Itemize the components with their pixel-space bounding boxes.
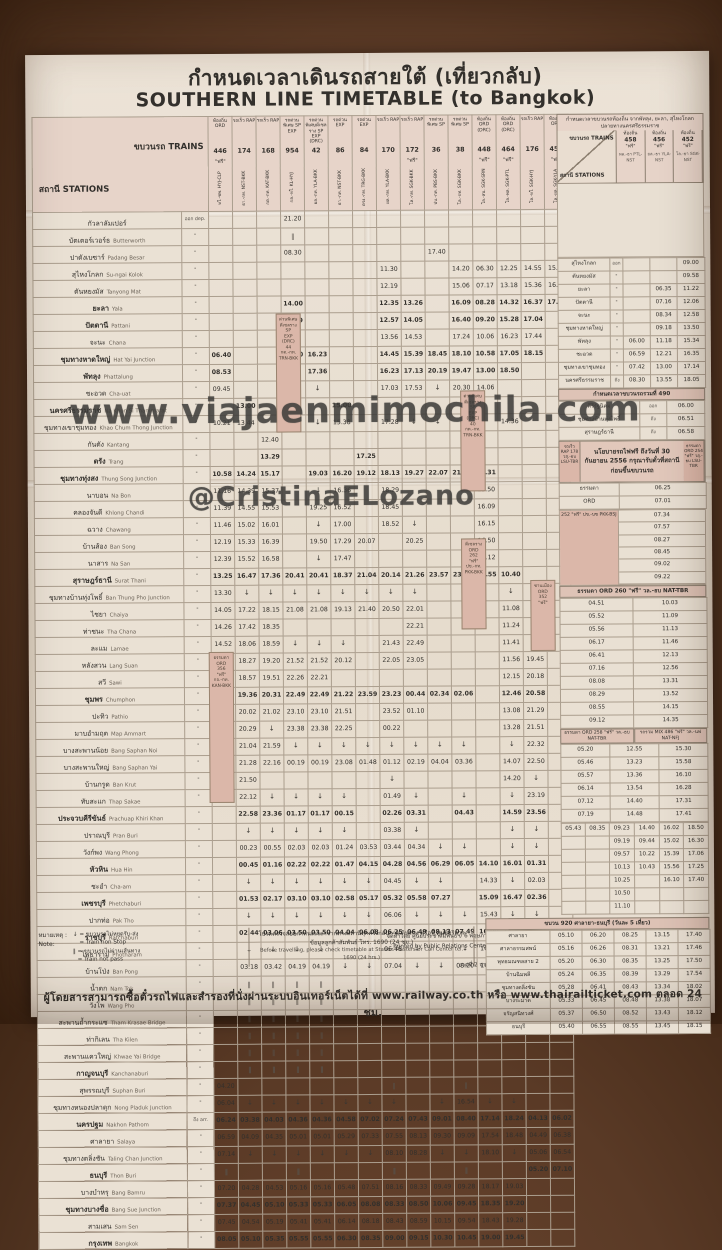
time-cell: 14.32: [497, 295, 521, 312]
time-cell: [478, 1060, 502, 1077]
title-english: SOUTHERN LINE TIMETABLE (to Bangkok): [115, 88, 615, 113]
mini-cell: 06.58: [667, 426, 705, 439]
mini-cell: [635, 888, 660, 901]
time-cell: 14.20: [500, 771, 524, 788]
mini-cell: ": [610, 297, 623, 310]
free-note-text: นโยบายรถไฟฟรี ถึงวันที่ 30 กันยายน 2556 …: [580, 441, 683, 482]
station-name-thai: ตันหยงมัส: [74, 288, 104, 296]
time-cell: 01.31: [524, 855, 548, 872]
train-free-tag: [353, 157, 376, 166]
mini-cell: 07.12: [561, 796, 610, 809]
mini-cell: 13.50: [677, 322, 705, 335]
train-column-header: รถด่วน EXP84ตรง.-กท. TRG-BKK: [352, 115, 377, 210]
time-cell: 22.49: [307, 687, 331, 704]
time-cell: [426, 448, 450, 465]
mini-cell: 18.50: [683, 823, 708, 836]
time-cell: [356, 805, 380, 822]
station-cell: นครปฐมNakhon Pathom: [38, 1113, 187, 1131]
mini-cell: 17.40: [678, 929, 710, 942]
mini-cell: [561, 849, 585, 862]
time-cell: 23.56: [524, 804, 548, 821]
overlay-line: ดีเซลราง: [462, 542, 485, 548]
time-cell: 07.14: [214, 1146, 238, 1163]
station-cell: สุราษฎร์ธานีSurat Thani: [35, 569, 184, 587]
dep-mark: ": [186, 891, 213, 908]
non-stop-arrow: ↓: [500, 822, 524, 839]
time-cell: 16.47: [501, 890, 525, 907]
time-cell: [475, 652, 499, 669]
time-cell: 22.58: [236, 806, 260, 823]
time-cell: 05.19: [263, 1214, 287, 1231]
station-name-english: Bang Saphan Yai: [112, 765, 157, 771]
dep-mark: ": [184, 653, 211, 670]
station-name-english: Thap Sakae: [109, 799, 141, 805]
time-cell: 11.08: [499, 601, 523, 618]
time-cell: [521, 226, 545, 243]
dep-mark: ": [185, 857, 212, 874]
mini-cell: [623, 297, 650, 310]
time-cell: 23.59: [355, 686, 379, 703]
time-cell: 21.02: [260, 704, 284, 721]
time-cell: [377, 210, 401, 227]
time-cell: 05.16: [286, 1180, 310, 1197]
time-cell: [522, 481, 546, 498]
station-name-thai: วังก์พง: [83, 849, 102, 857]
station-name-english: Ban Pong: [113, 969, 138, 975]
six-col-row: 10.50: [562, 888, 709, 902]
time-cell: 17.25: [354, 448, 378, 465]
time-cell: [329, 330, 353, 347]
mini-cell: 10.25: [610, 875, 635, 888]
time-cell: 19.36: [235, 687, 259, 704]
time-cell: 22.21: [307, 670, 331, 687]
time-cell: 17.47: [331, 551, 355, 568]
time-cell: [356, 720, 380, 737]
time-cell: 02.26: [380, 805, 404, 822]
mini-cell: 17.06: [683, 849, 708, 862]
watermarks: www.viajaenmimochila.com@CristinaELozano: [25, 51, 709, 55]
time-cell: 10.15: [431, 1213, 455, 1230]
time-cell: 18.43: [479, 1213, 503, 1230]
dep-mark: ": [187, 1163, 214, 1180]
time-cell: [353, 261, 377, 278]
train-route-code: ยล.-ธา YLA-NST: [645, 150, 673, 162]
mini-cell: 15.34: [677, 335, 705, 348]
mini-cell: ": [610, 349, 623, 362]
legend-label-en: Note:: [38, 941, 54, 948]
time-cell: 16.54: [454, 1094, 478, 1111]
time-cell: 18.15: [259, 602, 283, 619]
special-train-overlay: ดีเซลรางORD262"ฟรี"ปข.-กท.PKK-BKK: [461, 538, 487, 629]
time-cell: [473, 210, 497, 227]
non-stop-arrow: ↓: [332, 738, 356, 755]
time-cell: 00.19: [284, 755, 308, 772]
train-column-header: รถด่วน EXP86ธา.-กท. NST-BKK: [328, 116, 353, 211]
mini-cell: 07.16: [650, 297, 677, 310]
time-cell: [425, 227, 449, 244]
mini-cell: 08.34: [650, 310, 677, 323]
time-cell: 04.04: [428, 754, 452, 771]
time-cell: [334, 1163, 358, 1180]
mini-cell: 07.01: [619, 495, 706, 509]
time-cell: [402, 431, 426, 448]
non-stop-arrow: ↓: [358, 1094, 382, 1111]
time-cell: 16.47: [235, 568, 259, 585]
triple-row: 05.5713.3616.10: [561, 770, 708, 784]
time-cell: [379, 618, 403, 635]
non-stop-arrow: ↓: [402, 516, 426, 533]
time-cell: [358, 1043, 382, 1060]
station-cell: ชุมทางบ้านทุ่งโพธิ์Ban Thung Pho Junctio…: [35, 586, 184, 604]
non-stop-arrow: ↓: [334, 1146, 358, 1163]
station-name-english: Chawang: [106, 527, 131, 533]
time-cell: [550, 1178, 574, 1195]
time-cell: 21.50: [236, 772, 260, 789]
non-stop-arrow: ↓: [285, 908, 309, 925]
time-cell: 21.29: [524, 702, 548, 719]
station-cell: คลองจันดีKhlong Chandi: [34, 501, 183, 519]
rap178-strip: รถเร็ว RAP 178 วสุ.-ธบ LSU-TBR: [559, 442, 580, 482]
dep-mark: ": [182, 347, 209, 364]
time-cell: [497, 244, 521, 261]
time-cell: [475, 635, 499, 652]
time-cell: [478, 1162, 502, 1179]
station-name-thai: ชุมทางหาดใหญ่: [61, 355, 111, 364]
mini-cell: 06.35: [582, 969, 614, 982]
not-pass-icon: ‖: [73, 949, 76, 955]
station-cell: ฉวางChawang: [34, 518, 183, 536]
station-cell: บัตเตอร์เวอร์ธButterworth: [33, 229, 182, 247]
station-name-thai: บ้านกรูด: [85, 781, 110, 789]
train252-block: 252 "ฟรี" ปข.-บซ PKK-BSJ07.3407.5708.270…: [559, 509, 706, 586]
non-stop-arrow: ↓: [380, 737, 404, 754]
time-cell: [522, 498, 546, 515]
time-cell: [233, 313, 257, 330]
non-stop-arrow: ↓: [429, 873, 453, 890]
time-cell: 05.01: [310, 1129, 334, 1146]
time-cell: 18.35: [259, 619, 283, 636]
triple-row: 05.4613.2315.58: [561, 757, 708, 771]
station-cell: กันตังKantang: [34, 433, 183, 451]
station-name-english: Ban Thung Pho Junction: [106, 595, 170, 601]
table-row: กรุงเทพBangkok"08.0505.1005.3505.5505.55…: [39, 1229, 575, 1249]
station-cell: ละแมLamae: [35, 637, 184, 655]
time-cell: [257, 228, 281, 245]
mini-cell: 17.31: [659, 796, 708, 809]
overlay-line: "ฟรี": [531, 600, 554, 606]
time-cell: [526, 1178, 550, 1195]
mini-cell: 06.20: [582, 930, 614, 943]
mini-cell: 16.02: [659, 823, 683, 836]
time-cell: 07.55: [382, 1128, 406, 1145]
time-cell: 08.13: [406, 1128, 430, 1145]
dep-mark: ": [182, 279, 209, 296]
train-route-code: ตรง.-กท. TRG-BKK: [361, 166, 368, 208]
station-name-english: Nakhon Pathom: [106, 1122, 149, 1128]
mini-cell: ": [610, 323, 623, 336]
station-name-english: Ban Krut: [113, 782, 136, 788]
time-cell: 17.24: [449, 329, 473, 346]
time-cell: 23.38: [308, 721, 332, 738]
mini-cell: 05.56: [560, 624, 633, 637]
pair-row: 08.2913.52: [560, 689, 707, 703]
time-cell: [306, 432, 330, 449]
right-station-row: ตันหยงมัส"09.58: [558, 270, 705, 284]
time-cell: 01.48: [356, 754, 380, 771]
dep-mark: ": [183, 517, 210, 534]
time-cell: [329, 262, 353, 279]
time-cell: 22.12: [236, 789, 260, 806]
not-pass-mark: ‖: [238, 1027, 262, 1044]
time-cell: 05.29: [334, 1129, 358, 1146]
time-cell: 18.17: [478, 1179, 502, 1196]
station-name-thai: บ้านโป่ง: [85, 968, 109, 976]
time-cell: [282, 449, 306, 466]
time-cell: 17.05: [497, 346, 521, 363]
dep-mark: ": [182, 330, 209, 347]
time-cell: 04.13: [526, 1110, 550, 1127]
time-cell: 18.10: [478, 1145, 502, 1162]
train-column-header: รถด่วนพิเศษ SP36ปบ.-กท. PBS-BKK: [424, 115, 449, 210]
mini-cell: 15.58: [659, 757, 708, 770]
train-free-tag: [425, 157, 448, 166]
time-cell: [233, 262, 257, 279]
time-cell: [379, 550, 403, 567]
time-cell: [551, 1229, 575, 1246]
mini-cell: 09.57: [609, 849, 634, 862]
time-cell: 10.45: [455, 1230, 479, 1247]
mini-cell: 06.51: [667, 413, 705, 426]
time-cell: 06.30: [335, 1231, 359, 1248]
dep-mark: ": [187, 1095, 214, 1112]
time-cell: 10.06: [431, 1196, 455, 1213]
not-pass-mark: ‖: [214, 1163, 238, 1180]
time-cell: [356, 771, 380, 788]
mini-cell: 09.00: [677, 257, 705, 270]
time-cell: 12.39: [211, 551, 235, 568]
time-cell: [212, 823, 236, 840]
time-cell: 04.53: [262, 1180, 286, 1197]
time-cell: 09.22: [619, 572, 705, 585]
time-cell: 02.58: [333, 891, 357, 908]
time-cell: 21.59: [260, 738, 284, 755]
time-cell: [522, 464, 546, 481]
time-cell: 21.26: [403, 567, 427, 584]
time-cell: 18.59: [259, 636, 283, 653]
mini-cell: 13.55: [651, 375, 678, 388]
time-cell: [522, 447, 546, 464]
station-cell: บางบำหรุBang Bamru: [38, 1181, 187, 1199]
time-cell: 01.17: [308, 806, 332, 823]
time-cell: 12.57: [377, 312, 401, 329]
time-cell: 22.21: [403, 618, 427, 635]
time-cell: [499, 550, 523, 567]
time-cell: [329, 347, 353, 364]
time-cell: 04.28: [380, 856, 404, 873]
time-cell: 04.36: [286, 1112, 310, 1129]
time-cell: 05.17: [357, 890, 381, 907]
station-name-english: Trang: [109, 460, 124, 466]
station-name-thai: สุราษฎร์ธานี: [73, 576, 112, 585]
time-cell: 05.16: [310, 1180, 334, 1197]
station-name-thai: ปัตตานี: [85, 321, 108, 330]
non-stop-arrow: ↓: [262, 1146, 286, 1163]
special-train-overlay: ธรรมดาORD356"ฟรี"กจ.-กท.KAN-BKK: [209, 652, 235, 803]
mini-cell: [561, 836, 585, 849]
mini-cell: [635, 901, 660, 914]
train-number: 464: [497, 145, 520, 156]
mini-cell: 16.10: [659, 770, 708, 783]
time-cell: [283, 551, 307, 568]
time-cell: [452, 703, 476, 720]
non-stop-arrow: ↓: [404, 822, 428, 839]
station-name-english: Bang Saphan Noi: [111, 748, 157, 754]
time-cell: 05.10: [263, 1197, 287, 1214]
train-route-code: โล.-ธา SGK-NST: [674, 150, 702, 162]
mini-cell: 10.22: [634, 849, 659, 862]
non-stop-arrow: ↓: [285, 874, 309, 891]
mini-cell: พุทธมณฑลสาย 2: [486, 956, 550, 969]
time-cell: [401, 278, 425, 295]
time-cell: [450, 516, 474, 533]
time-cell: [401, 261, 425, 278]
time-cell: 19.28: [503, 1213, 527, 1230]
dep-mark: ": [182, 228, 209, 245]
time-cell: 00.55: [260, 840, 284, 857]
mini-cell: [586, 875, 610, 888]
time-cell: [476, 754, 500, 771]
station-name-english: Lang Suan: [109, 663, 137, 669]
time-cell: 15.39: [401, 346, 425, 363]
time-cell: [307, 619, 331, 636]
time-cell: 04.49: [526, 1127, 550, 1144]
station-cell: สะพานแควใหญ่Khwae Yai Bridge: [38, 1045, 187, 1063]
time-cell: 14.59: [500, 805, 524, 822]
time-cell: [478, 1043, 502, 1060]
time-cell: [329, 211, 353, 228]
timetable-paper: กำหนดเวลาเดินรถสายใต้ (เที่ยวกลับ) SOUTH…: [25, 51, 715, 1017]
time-cell: [305, 313, 329, 330]
train-column-header: ท้องถิ่น ORD (DRC)448"ฟรี"โล.-สน. SGK-SR…: [472, 115, 497, 210]
non-stop-arrow: ↓: [454, 1145, 478, 1162]
station-cell: ทับสะแกThap Sakae: [36, 790, 185, 808]
time-cell: 08.28: [473, 295, 497, 312]
six-col-row: 10.1310.4315.5617.25: [562, 862, 709, 876]
mini-cell: [562, 901, 586, 914]
train-route: โล.-พล. SGK-PTL: [497, 165, 520, 209]
station-cell: ประจวบคีรีขันธ์Prachuap Khiri Khan: [36, 807, 185, 825]
time-cell: [310, 1163, 334, 1180]
station-name-thai: ปาดังเบซาร์: [70, 254, 105, 262]
mini-cell: 14.40: [634, 823, 659, 836]
time-cell: 20.07: [354, 533, 378, 550]
train-route: กต.-กท. KAT-BKK: [257, 167, 280, 211]
time-cell: 06.05: [335, 1197, 359, 1214]
train-free-tag: "ฟรี": [473, 156, 496, 165]
mini-cell: 12.56: [633, 663, 707, 676]
station-name-thai: บ้านส้อง: [83, 543, 107, 551]
time-cell: 20.41: [283, 568, 307, 585]
time-cell: [353, 363, 377, 380]
station-name-english: Padang Besar: [108, 255, 145, 261]
arrow-icon: ↓: [73, 932, 78, 938]
dep-mark: ": [182, 245, 209, 262]
time-cell: [476, 771, 500, 788]
time-cell: [522, 430, 546, 447]
mini-cell: 13.45: [646, 1021, 678, 1034]
overlay-line: ชานเมือง: [531, 584, 554, 590]
mini-cell: [623, 323, 650, 336]
mini-cell: 08.29: [560, 689, 633, 702]
time-cell: 21.08: [283, 602, 307, 619]
time-cell: 09.54: [455, 1213, 479, 1230]
time-cell: [403, 550, 427, 567]
time-cell: 12.35: [377, 295, 401, 312]
time-cell: [212, 857, 236, 874]
non-stop-arrow: ↓: [307, 551, 331, 568]
time-cell: [428, 788, 452, 805]
time-cell: [449, 227, 473, 244]
time-cell: 17.00: [330, 517, 354, 534]
train-type: รถเร็ว RAP: [376, 116, 399, 146]
non-stop-arrow: ↓: [237, 874, 261, 891]
mini-cell: 11.09: [633, 611, 707, 624]
time-cell: 16.40: [449, 312, 473, 329]
mini-cell: 15.56: [660, 862, 684, 875]
station-name-english: Cha-am: [110, 884, 131, 890]
station-name-thai: ไชยา: [91, 611, 107, 619]
time-cell: [428, 720, 452, 737]
overlay-line: KAN-BKK: [210, 683, 233, 689]
station-name-thai: พัทลุง: [83, 372, 100, 381]
time-cell: 14.45: [377, 346, 401, 363]
mini-cell: 05.10: [550, 930, 582, 943]
pair-row: 07.1612.56: [560, 663, 707, 677]
time-cell: [353, 295, 377, 312]
time-cell: 13.28: [500, 720, 524, 737]
station-name-english: Bangkok: [115, 1241, 138, 1247]
train-route-code: ปบ.-กท. PBS-BKK: [433, 166, 440, 208]
time-cell: 08.45: [619, 547, 705, 560]
time-cell: 23.08: [332, 755, 356, 772]
station-cell: หลังสวนLang Suan: [35, 654, 184, 672]
time-cell: [209, 262, 233, 279]
time-cell: 00.15: [332, 806, 356, 823]
train-column-header: รถเร็ว RAP170ยล.-กท. YLA-BKK: [376, 115, 401, 210]
mini-cell: 05.20: [561, 744, 610, 757]
dep-mark: ": [184, 636, 211, 653]
time-cell: [234, 432, 258, 449]
time-cell: [451, 652, 475, 669]
mini-cell: 13.54: [610, 783, 659, 796]
time-cell: 06.59: [214, 1129, 238, 1146]
station-cell: บางสะพานใหญ่Bang Saphan Yai: [36, 756, 185, 774]
train-route: โล.-สน. SGK-SRN: [473, 165, 496, 209]
time-cell: [521, 209, 545, 226]
time-cell: 18.37: [331, 568, 355, 585]
time-cell: 01.16: [260, 857, 284, 874]
dep-mark: ": [184, 568, 211, 585]
time-cell: 00.22: [380, 720, 404, 737]
station-cell: พัทลุงPhattalung: [33, 365, 182, 383]
not-pass-mark: ‖: [382, 1077, 406, 1094]
station-name-english: Sawi: [109, 681, 122, 687]
time-cell: [354, 516, 378, 533]
station-name-thai: สวี: [98, 679, 106, 687]
time-cell: [305, 245, 329, 262]
right-station-row: สุไหงโกลกออก09.00: [558, 257, 705, 271]
time-cell: 16.09: [449, 295, 473, 312]
